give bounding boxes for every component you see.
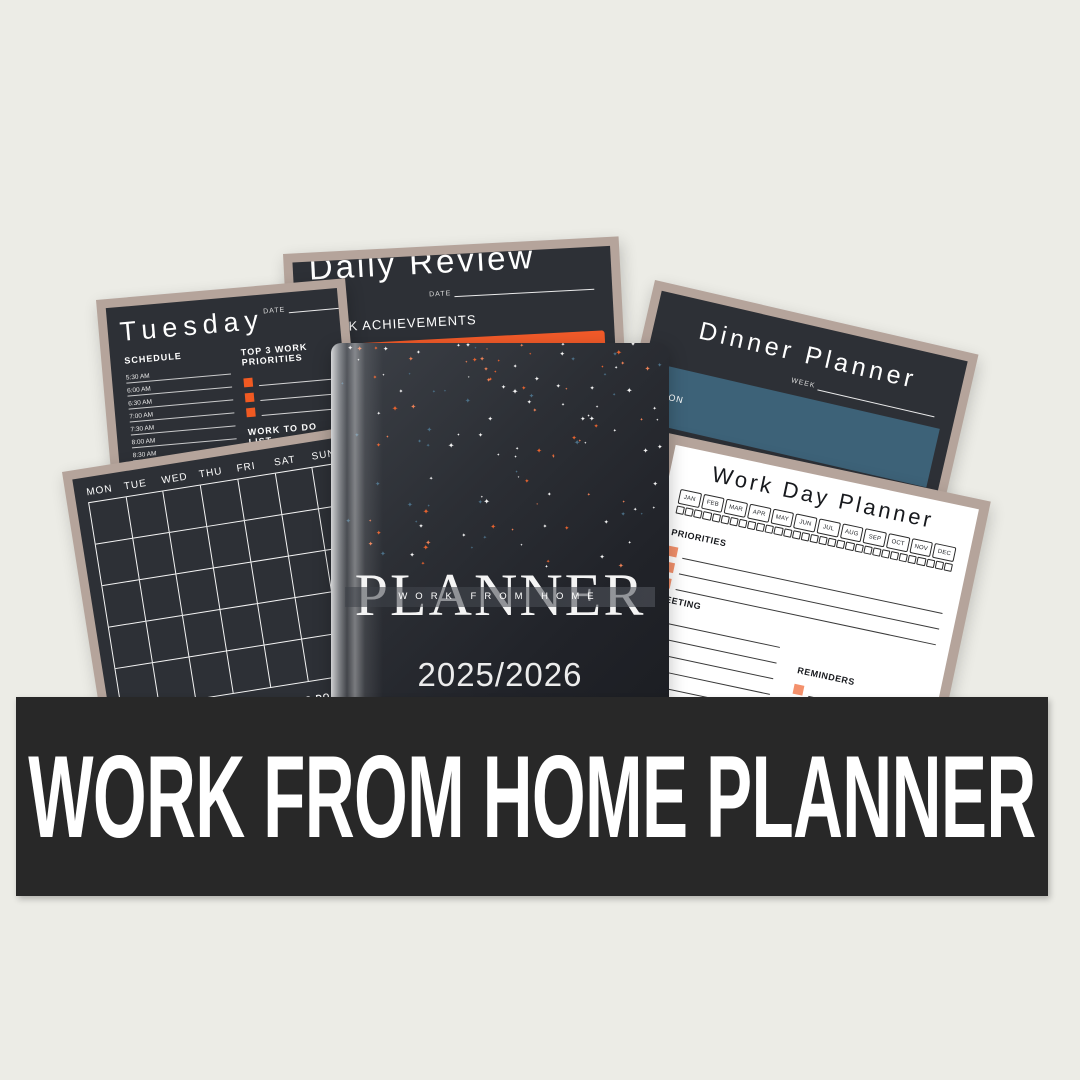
star-icon: ✦ [620,362,625,368]
calendar-cell [275,468,319,515]
day-box [863,545,873,555]
star-icon: ✦ [444,390,447,394]
calendar-cell [282,509,326,556]
day-box [917,557,927,567]
day-box [720,515,730,525]
calendar-cell [140,574,184,621]
star-icon: ✦ [657,445,663,452]
star-icon: ✦ [369,519,373,523]
month-box: NOV [909,538,933,557]
star-icon: ✦ [392,405,398,412]
star-icon: ✦ [520,544,523,548]
star-icon: ✦ [652,482,658,489]
calendar-cell [289,551,333,598]
priorities-list [243,365,336,418]
calendar-cell [170,527,214,574]
day-box [774,526,784,536]
star-icon: ✦ [622,500,625,504]
checkbox-icon [244,393,254,403]
cover-subtitle-band: WORK FROM HOME [345,587,656,607]
calendar-cell [96,539,140,586]
star-icon: ✦ [486,378,491,384]
star-icon: ✦ [427,504,430,508]
calendar-cell [164,485,208,532]
calendar-cell [251,557,295,604]
star-icon: ✦ [594,425,599,431]
month-box: JUL [816,518,840,537]
star-icon: ✦ [630,343,635,349]
star-icon: ✦ [386,435,389,439]
star-icon: ✦ [408,357,413,363]
star-icon: ✦ [590,386,595,392]
star-icon: ✦ [515,471,518,475]
star-icon: ✦ [456,344,460,349]
star-icon: ✦ [587,493,591,498]
star-icon: ✦ [513,365,518,371]
star-icon: ✦ [640,513,643,517]
star-icon: ✦ [479,357,484,364]
star-icon: ✦ [552,456,555,460]
star-icon: ✦ [417,440,421,445]
planner-product-mockup: Daily Review DATE WORK ACHIEVEMENTS Dinn… [0,0,1080,1080]
weekday-label: MON [86,482,125,499]
star-icon: ✦ [376,531,381,537]
calendar-cell [208,521,252,568]
star-icon: ✦ [616,349,622,356]
day-box [783,528,793,538]
star-icon: ✦ [480,496,483,500]
star-icon: ✦ [517,476,520,479]
star-icon: ✦ [601,365,604,369]
calendar-cell [146,616,190,663]
star-icon: ✦ [348,346,353,352]
month-box: MAR [724,499,748,518]
weekday-label: THU [198,464,237,481]
star-icon: ✦ [483,498,489,505]
star-icon: ✦ [483,368,488,374]
month-box: DEC [932,543,956,562]
date-field: DATE [429,283,594,299]
star-icon: ✦ [486,348,489,351]
star-icon: ✦ [529,353,532,356]
star-icon: ✦ [487,417,493,424]
day-box [711,513,721,523]
day-box [925,559,935,569]
calendar-cell [133,533,177,580]
month-box: FEB [701,494,725,513]
star-icon: ✦ [497,453,500,457]
star-icon: ✦ [468,376,471,379]
calendar-cell [102,580,146,627]
star-icon: ✦ [640,418,644,423]
star-icon: ✦ [340,382,344,387]
star-icon: ✦ [399,390,404,395]
star-icon: ✦ [376,444,381,450]
star-icon: ✦ [409,553,414,559]
star-icon: ✦ [429,478,433,483]
star-icon: ✦ [357,346,363,353]
day-box [845,542,855,552]
star-icon: ✦ [551,454,555,459]
month-box: APR [747,504,771,523]
star-icon: ✦ [357,359,360,363]
star-icon: ✦ [383,347,388,353]
star-icon: ✦ [488,378,493,384]
month-box: SEP [863,528,887,547]
work-achievements-label: WORK ACHIEVEMENTS [314,305,614,336]
calendar-cell [109,622,153,669]
star-icon: ✦ [382,374,385,378]
star-icon: ✦ [628,541,632,545]
star-icon: ✦ [407,503,413,510]
star-icon: ✦ [559,352,564,358]
cover-subtitle: WORK FROM HOME [398,591,601,602]
star-icon: ✦ [368,542,374,549]
star-icon: ✦ [377,412,381,417]
calendar-cell [238,474,282,521]
month-box: JUN [793,513,817,532]
star-icon: ✦ [483,537,487,542]
star-icon: ✦ [527,400,532,406]
star-icon: ✦ [656,419,659,422]
checkbox-icon [243,378,253,388]
star-icon: ✦ [578,439,581,443]
star-icon: ✦ [561,343,565,348]
star-icon: ✦ [587,415,590,419]
priorities-label: TOP 3 WORK PRIORITIES [240,340,331,368]
star-icon: ✦ [425,540,431,547]
star-icon: ✦ [543,525,548,531]
star-icon: ✦ [461,534,466,540]
star-icon: ✦ [465,361,468,365]
star-icon: ✦ [374,347,379,353]
weekday-label: FRI [236,458,275,475]
star-icon: ✦ [524,479,529,485]
star-icon: ✦ [490,524,496,531]
planner-cover: ✦✦✦✦✦✦✦✦✦✦✦✦✦✦✦✦✦✦✦✦✦✦✦✦✦✦✦✦✦✦✦✦✦✦✦✦✦✦✦✦… [331,343,669,701]
star-icon: ✦ [657,363,662,369]
day-box [854,543,864,553]
date-field: DATE [263,301,346,315]
star-icon: ✦ [410,404,416,411]
calendar-cell [214,562,258,609]
month-box: JAN [678,489,702,508]
day-box [702,511,712,521]
star-icon: ✦ [595,405,598,409]
title-banner: WORK FROM HOME PLANNER [16,697,1048,896]
star-icon: ✦ [472,358,478,365]
checkbox-icon [246,408,256,418]
star-icon: ✦ [478,501,483,507]
star-icon: ✦ [613,352,618,358]
star-icon: ✦ [626,387,632,395]
star-icon: ✦ [633,508,637,513]
star-icon: ✦ [375,482,381,489]
calendar-cell [264,640,308,687]
calendar-cell [177,568,221,615]
calendar-cell [89,497,133,544]
star-icon: ✦ [470,546,473,550]
weekday-label: TUE [123,476,162,493]
star-icon: ✦ [643,447,649,454]
star-icon: ✦ [520,345,524,350]
star-icon: ✦ [652,407,656,412]
cover-years: 2025/2026 [331,656,669,694]
star-icon: ✦ [584,442,587,445]
star-icon: ✦ [521,387,526,393]
star-icon: ✦ [512,388,518,395]
month-box: OCT [886,533,910,552]
star-icon: ✦ [571,436,576,442]
calendar-cell [245,515,289,562]
star-icon: ✦ [426,445,430,450]
star-icon: ✦ [515,447,519,452]
star-icon: ✦ [514,455,517,459]
star-icon: ✦ [511,528,515,532]
star-icon: ✦ [494,370,497,374]
star-icon: ✦ [373,376,378,382]
calendar-cell [227,645,271,692]
day-box [792,530,802,540]
star-icon: ✦ [474,347,477,350]
calendar-cell [201,480,245,527]
star-icon: ✦ [612,393,616,398]
calendar-cell [183,610,227,657]
calendar-cell [221,604,265,651]
star-icon: ✦ [466,344,471,350]
star-icon: ✦ [346,519,351,525]
date-line [289,307,347,313]
star-icon: ✦ [614,366,618,370]
weekday-label: WED [161,470,200,487]
star-icon: ✦ [603,373,607,378]
star-icon: ✦ [565,388,568,392]
star-icon: ✦ [561,403,565,408]
calendar-cell [126,491,170,538]
star-icon: ✦ [478,433,483,439]
banner-title: WORK FROM HOME PLANNER [28,729,1035,864]
star-icon: ✦ [497,359,500,363]
star-icon: ✦ [621,512,626,518]
star-icon: ✦ [416,351,421,357]
star-icon: ✦ [448,442,454,449]
star-icon: ✦ [536,503,539,506]
star-icon: ✦ [604,520,609,526]
star-icon: ✦ [613,429,617,434]
star-icon: ✦ [547,493,552,499]
star-icon: ✦ [457,433,461,437]
star-icon: ✦ [419,524,424,530]
star-icon: ✦ [556,385,561,391]
star-icon: ✦ [529,394,534,401]
calendar-cell [190,651,234,698]
star-icon: ✦ [652,507,655,511]
star-icon: ✦ [501,386,506,392]
star-icon: ✦ [423,544,429,551]
star-icon: ✦ [380,550,386,557]
month-box: AUG [840,523,864,542]
star-icon: ✦ [645,367,651,374]
star-icon: ✦ [354,433,359,439]
star-icon: ✦ [589,416,595,423]
calendar-cell [258,598,302,645]
star-icon: ✦ [426,428,432,435]
star-icon: ✦ [580,417,585,424]
star-icon: ✦ [408,373,411,376]
star-icon: ✦ [564,527,569,533]
star-icon: ✦ [534,377,539,383]
weekday-label: SAT [273,452,312,469]
star-icon: ✦ [432,390,436,394]
star-icon: ✦ [465,398,471,405]
star-icon: ✦ [536,448,542,455]
cover-title: PLANNER WORK FROM HOME [355,561,646,630]
month-box: MAY [770,509,794,528]
star-icon: ✦ [571,357,576,363]
star-icon: ✦ [414,520,417,524]
day-box [943,562,953,572]
star-icon: ✦ [574,439,580,447]
star-icon: ✦ [532,409,537,415]
star-icon: ✦ [423,508,429,515]
date-line [454,289,594,297]
day-box [934,561,944,571]
checkbox-icon [793,684,805,696]
